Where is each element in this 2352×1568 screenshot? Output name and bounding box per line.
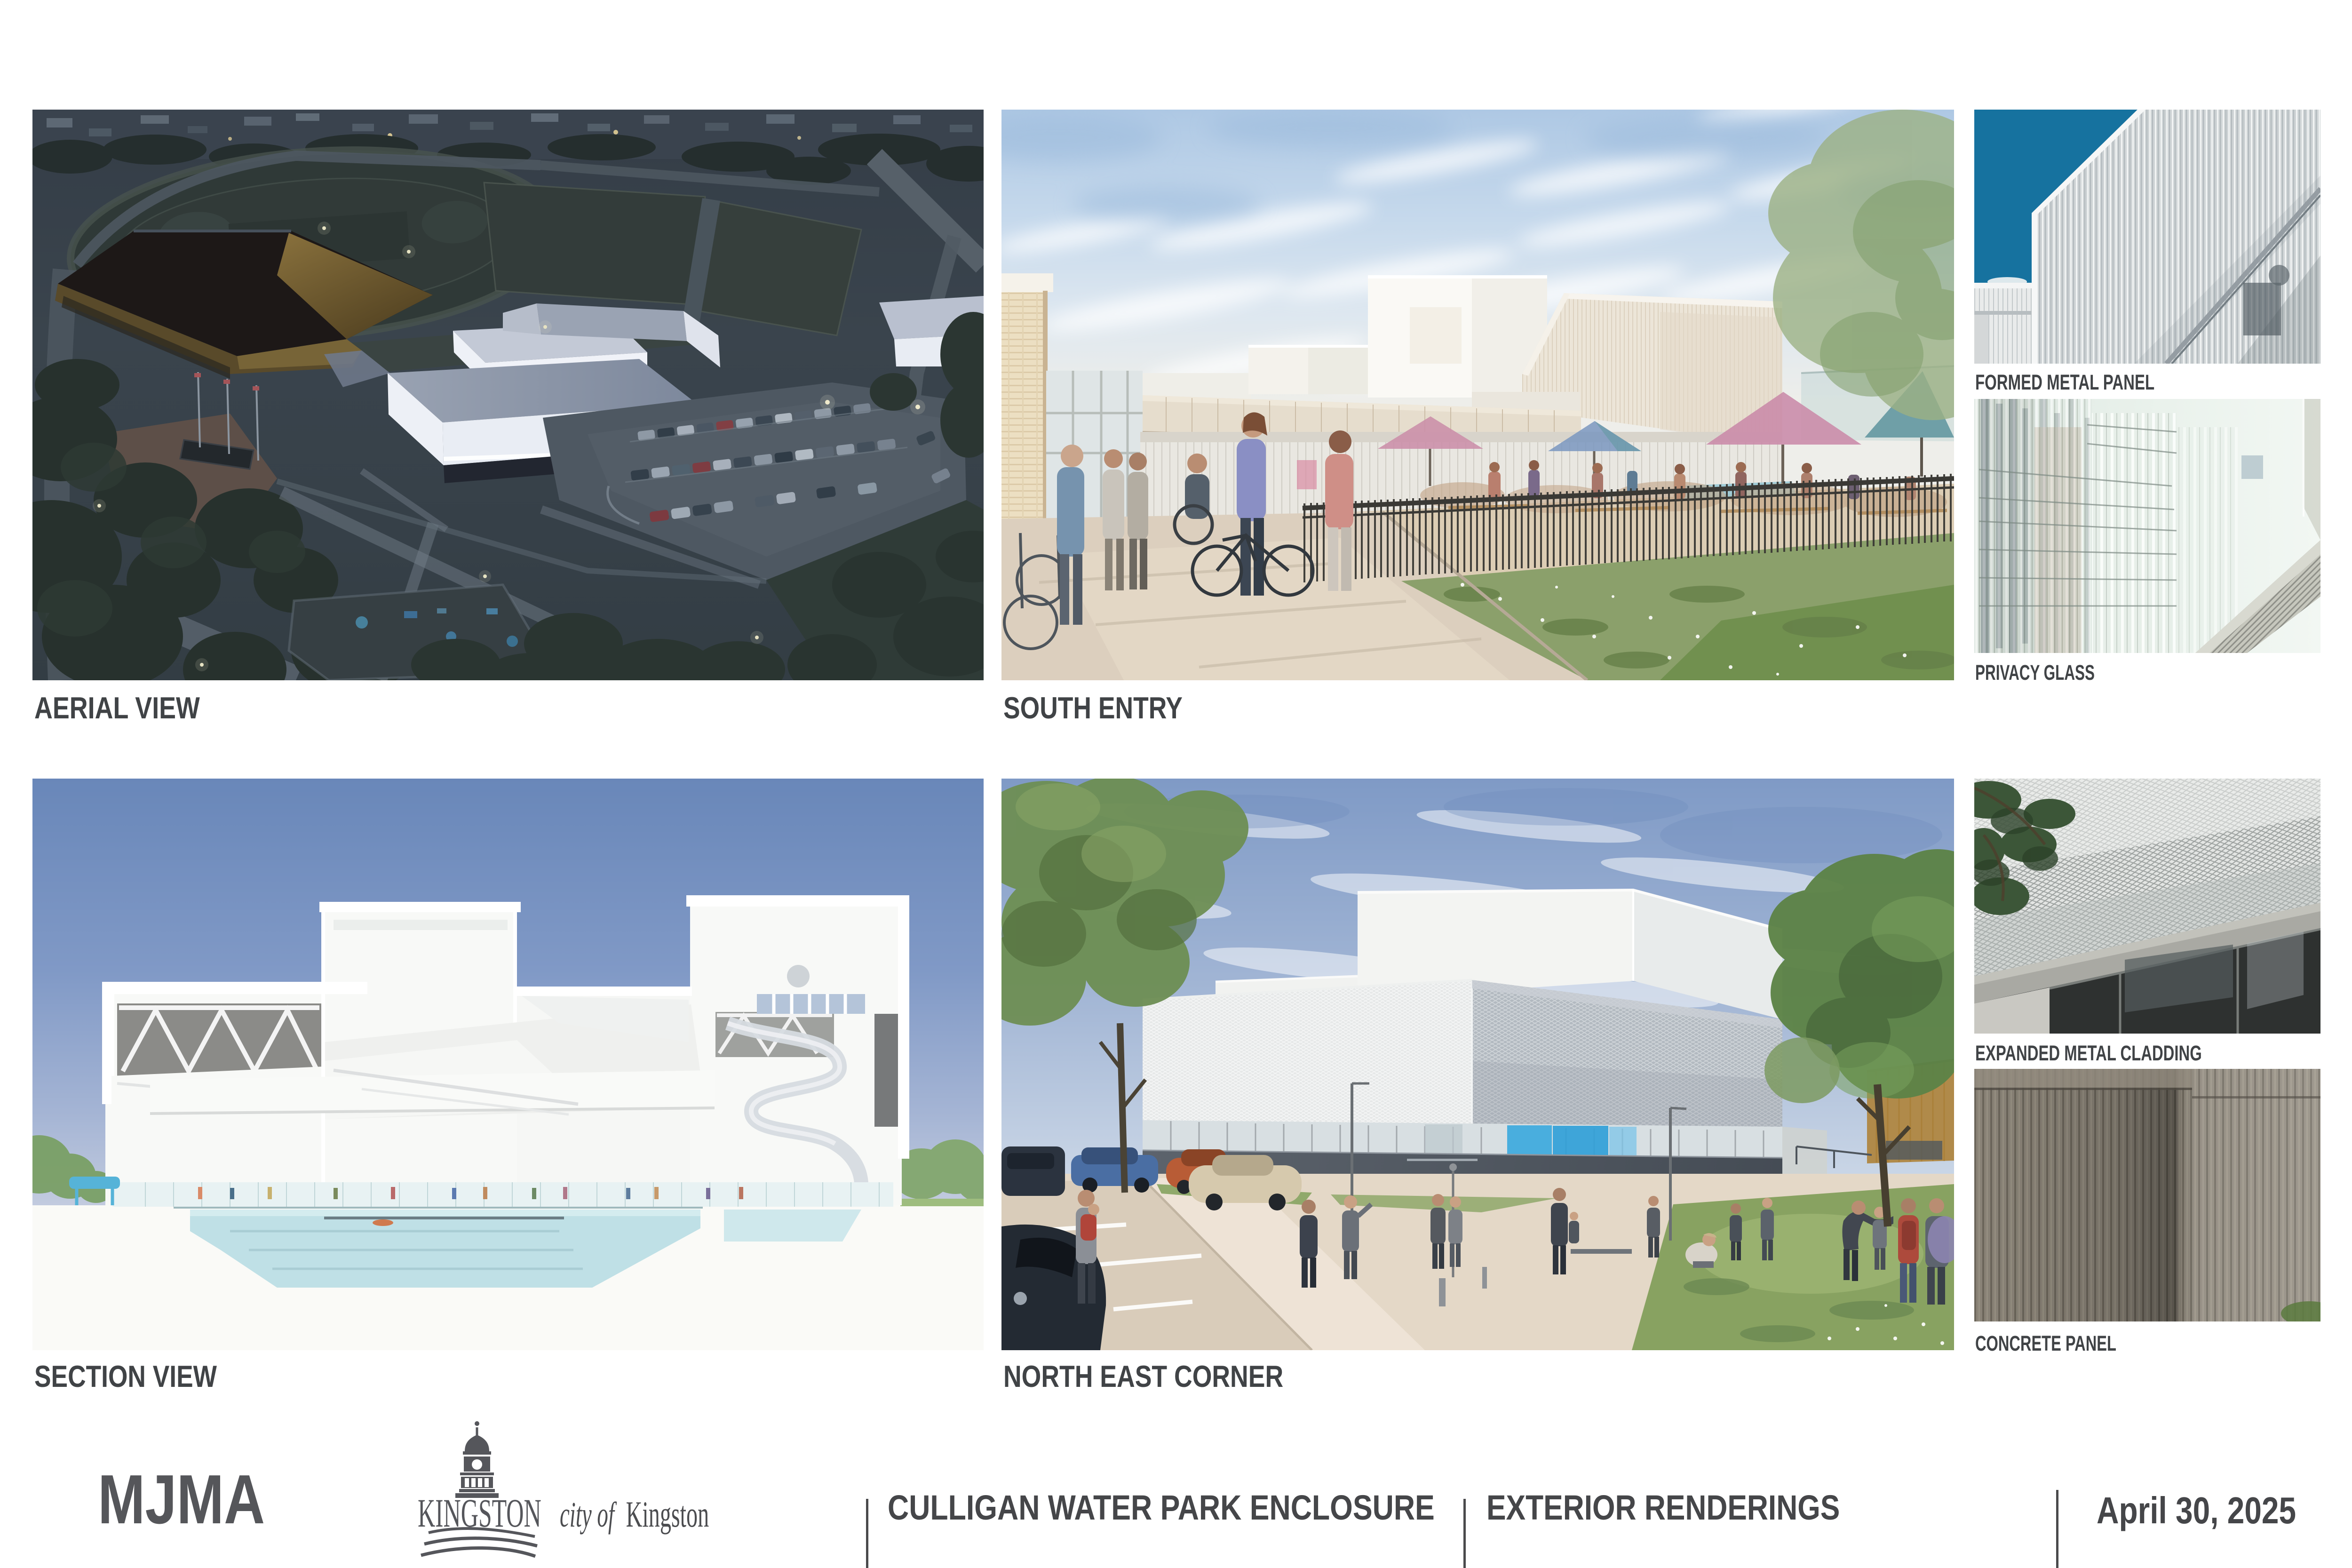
svg-text:city of: city of <box>560 1495 617 1535</box>
svg-text:Kingston: Kingston <box>626 1494 709 1535</box>
